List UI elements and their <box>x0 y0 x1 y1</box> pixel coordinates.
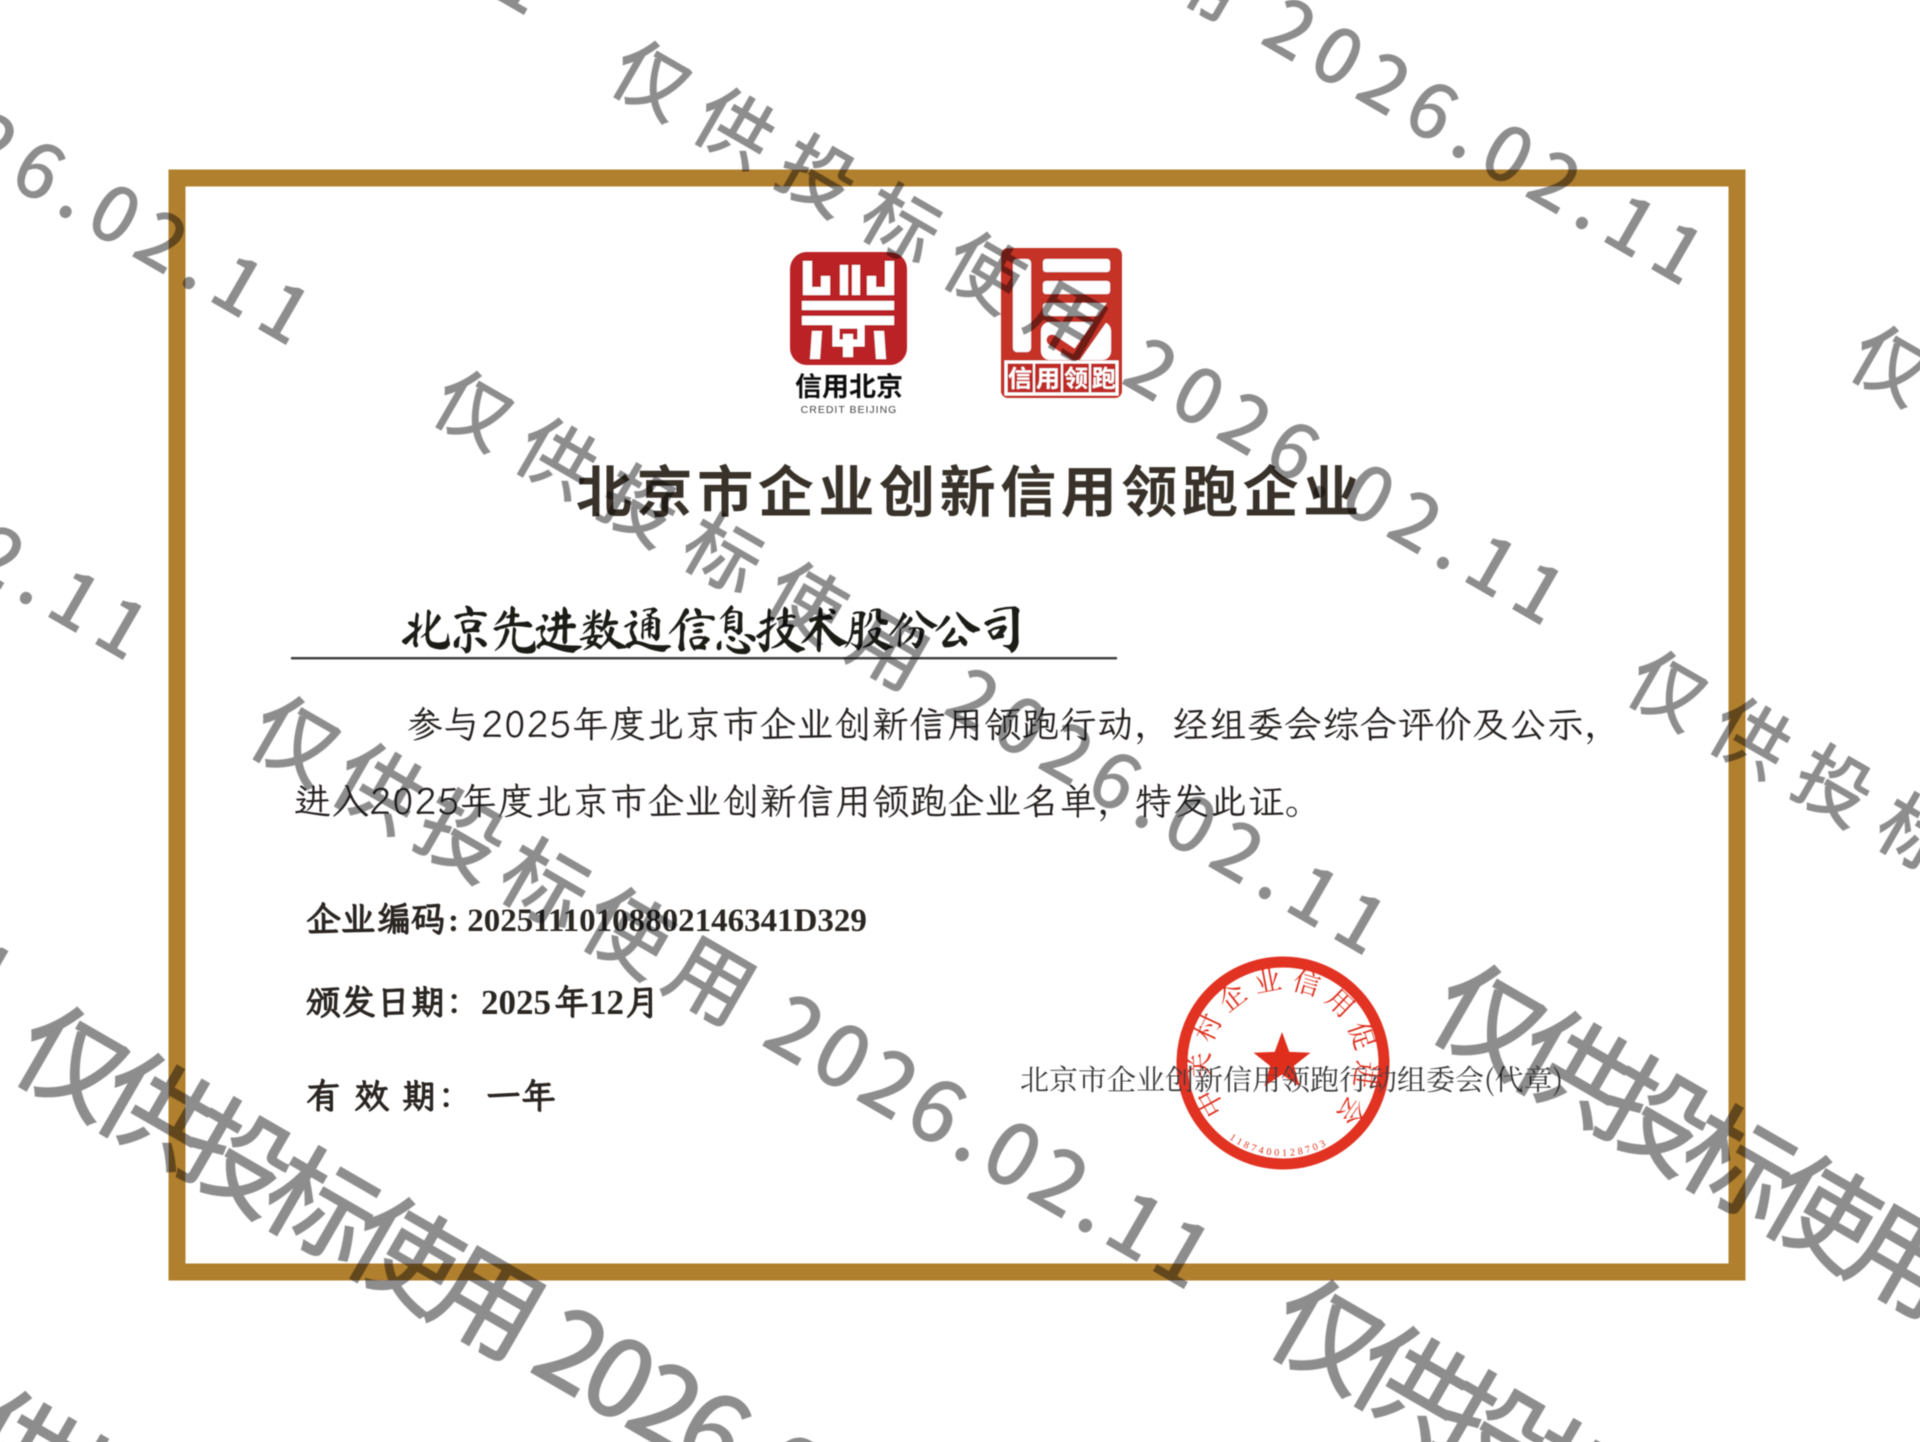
svg-text:0: 0 <box>1274 1148 1280 1159</box>
svg-text:2025: 2025 <box>481 983 551 1022</box>
svg-text:12: 12 <box>589 983 624 1022</box>
svg-text:CREDIT BEIJING: CREDIT BEIJING <box>801 404 898 416</box>
svg-text:1: 1 <box>1282 1148 1287 1159</box>
